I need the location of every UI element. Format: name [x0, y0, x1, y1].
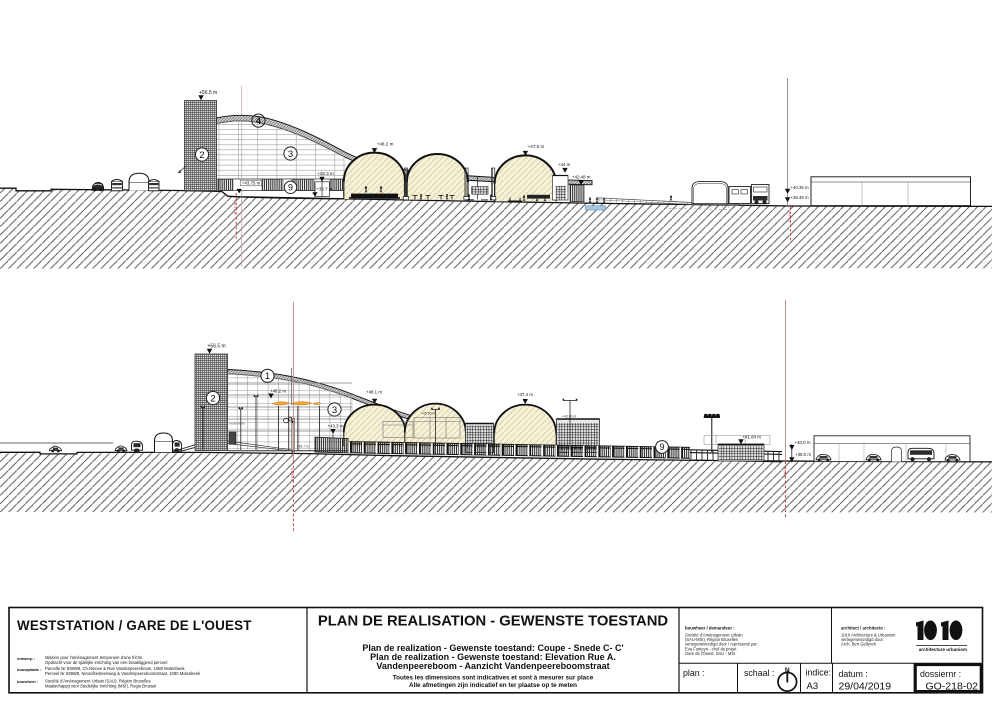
svg-text:4 x 4 5 0: 4 x 4 5 0 [233, 200, 237, 214]
svg-text:+56.5 m: +56.5 m [208, 343, 226, 349]
svg-text:3: 3 [332, 405, 337, 416]
svg-text:datum :: datum : [839, 669, 868, 679]
svg-text:+43.3 m: +43.3 m [328, 424, 344, 429]
svg-text:2: 2 [199, 150, 204, 161]
svg-text:+43.75 m: +43.75 m [242, 181, 261, 186]
svg-text:architect / architecte :: architect / architecte : [841, 626, 886, 631]
svg-text:+38.0 m: +38.0 m [795, 452, 811, 457]
svg-text:2: 2 [210, 393, 215, 404]
svg-text:GO-218-02: GO-218-02 [925, 681, 978, 693]
svg-text:+48.2 m: +48.2 m [377, 141, 394, 146]
svg-text:9: 9 [288, 183, 293, 193]
svg-text:4 x 4 5: 4 x 4 5 [787, 212, 791, 222]
svg-text:indice:: indice: [806, 668, 831, 678]
svg-text:+47.5 m: +47.5 m [528, 144, 545, 149]
svg-text:+56.5 m: +56.5 m [199, 90, 217, 96]
svg-text:4: 4 [256, 116, 262, 127]
svg-text:bouwplaats :: bouwplaats : [17, 667, 41, 672]
svg-text:Arch. Bert Gellynck: Arch. Bert Gellynck [841, 642, 877, 647]
svg-text:Toutes les dimensions sont ind: Toutes les dimensions sont indicatives e… [393, 675, 594, 682]
svg-text:29/04/2019: 29/04/2019 [839, 681, 892, 693]
svg-text:Gare de l'Ouest, SAU - MSI: Gare de l'Ouest, SAU - MSI [685, 651, 735, 656]
svg-text:9: 9 [659, 442, 664, 452]
svg-text:+48.1 m: +48.1 m [366, 390, 382, 395]
svg-text:+43.60 m: +43.60 m [562, 415, 576, 419]
svg-text:+39.7 m: +39.7 m [297, 445, 310, 449]
svg-text:bouwheer :: bouwheer : [17, 679, 38, 684]
svg-text:+44 m: +44 m [558, 162, 571, 167]
svg-text:+48.2 m: +48.2 m [270, 388, 286, 393]
svg-text:route verte: route verte [229, 422, 245, 426]
svg-text:1: 1 [265, 371, 270, 382]
svg-text:architecture urbanism: architecture urbanism [919, 647, 967, 652]
svg-text:WESTSTATION / GARE DE L'OUEST: WESTSTATION / GARE DE L'OUEST [17, 618, 252, 633]
svg-text:3: 3 [288, 149, 293, 160]
svg-text:Opdracht voor de tijdelijke in: Opdracht voor de tijdelijke inrichting v… [45, 660, 168, 665]
svg-text:+40.35 m: +40.35 m [791, 185, 809, 190]
svg-text:N: N [785, 667, 790, 674]
svg-text:dossiernr :: dossiernr : [920, 669, 961, 679]
svg-text:Alle afmetingen zijn indicatie: Alle afmetingen zijn indicatief en ter p… [409, 682, 577, 689]
svg-text:Maatschappij voor Stedelijke I: Maatschappij voor Stedelijke Inrichting … [45, 684, 156, 689]
svg-text:+38.45 m: +38.45 m [791, 195, 809, 200]
svg-text:ontwerp :: ontwerp : [17, 656, 35, 661]
svg-text:PLAN DE REALISATION - GEWENSTE: PLAN DE REALISATION - GEWENSTE TOESTAND [318, 614, 669, 630]
svg-text:+45.60 m: +45.60 m [421, 412, 435, 416]
svg-text:4 x 4 5 0: 4 x 4 5 0 [290, 468, 294, 481]
svg-text:+39.7 m: +39.7 m [316, 187, 332, 192]
svg-text:+42.48 m: +42.48 m [572, 175, 591, 180]
svg-text:Vandenpeereboom - Aanzicht Van: Vandenpeereboom - Aanzicht Vandenpeerebo… [376, 661, 609, 671]
svg-text:Perceel Nr 839W8, Ninoofsestee: Perceel Nr 839W8, Ninoofsesteenweg & Van… [45, 671, 201, 676]
svg-text:4 x 4 5: 4 x 4 5 [782, 467, 786, 477]
svg-text:+47.4 m: +47.4 m [517, 392, 533, 397]
svg-text:plan :: plan : [683, 668, 705, 678]
svg-text:+48.3 m: +48.3 m [317, 171, 334, 176]
svg-text:bouwheer / demandeur :: bouwheer / demandeur : [685, 626, 735, 631]
svg-text:A3: A3 [807, 681, 819, 692]
svg-text:+40.0 m: +40.0 m [795, 440, 811, 445]
svg-text:+41.84 m: +41.84 m [743, 434, 762, 439]
svg-text:schaal :: schaal : [744, 668, 774, 678]
